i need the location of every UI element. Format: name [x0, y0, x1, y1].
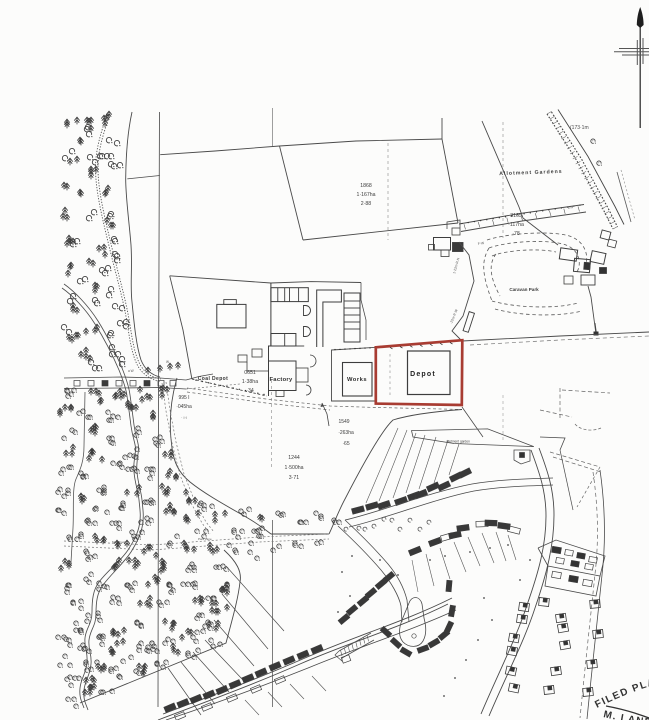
svg-text:allotment garden: allotment garden — [446, 440, 470, 444]
svg-text:· I·I: · I·I — [181, 416, 186, 420]
svg-text:Park Lane: Park Lane — [198, 537, 212, 541]
svg-text:995 I: 995 I — [178, 395, 189, 401]
svg-text:Works: Works — [347, 377, 367, 383]
svg-text:(173·1m: (173·1m — [570, 125, 589, 131]
svg-text:1868: 1868 — [360, 183, 372, 189]
svg-text:W: W — [166, 360, 169, 364]
svg-text:1·500ha: 1·500ha — [284, 465, 303, 471]
svg-text:2·88: 2·88 — [361, 201, 371, 207]
svg-text:3·71: 3·71 — [289, 475, 299, 481]
svg-text:1·38ha: 1·38ha — [242, 379, 258, 385]
svg-text:·263ha: ·263ha — [338, 430, 354, 436]
svg-text:Caravan Park: Caravan Park — [509, 287, 539, 292]
svg-text:Factory: Factory — [269, 377, 293, 383]
svg-text:·65: ·65 — [342, 441, 349, 447]
svg-text:a W: a W — [128, 369, 134, 373]
svg-text:·045ha: ·045ha — [176, 404, 192, 410]
svg-text:1549: 1549 — [338, 419, 349, 425]
svg-text:1·167ha: 1·167ha — [356, 192, 375, 198]
svg-text:·34: ·34 — [246, 388, 254, 394]
svg-text:1244: 1244 — [288, 455, 300, 461]
svg-text:Coal Depot: Coal Depot — [198, 376, 228, 382]
svg-text:Depot: Depot — [410, 371, 436, 378]
